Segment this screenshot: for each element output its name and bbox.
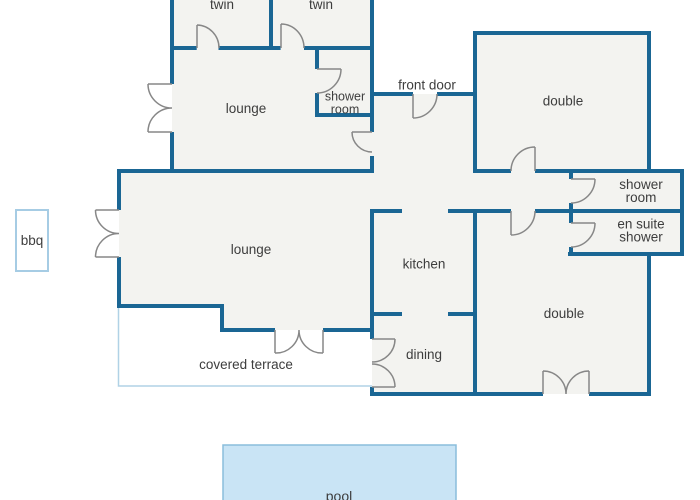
svg-text:front door: front door xyxy=(398,78,456,93)
svg-text:covered terrace: covered terrace xyxy=(199,357,293,372)
svg-text:shower: shower xyxy=(325,90,365,104)
svg-text:shower: shower xyxy=(619,230,663,245)
svg-text:lounge: lounge xyxy=(231,242,272,257)
svg-text:kitchen: kitchen xyxy=(403,257,446,272)
svg-text:double: double xyxy=(543,94,584,109)
svg-text:room: room xyxy=(626,190,657,205)
svg-text:double: double xyxy=(544,306,585,321)
svg-text:pool: pool xyxy=(326,488,352,500)
svg-text:lounge: lounge xyxy=(226,101,267,116)
svg-text:twin: twin xyxy=(210,0,234,12)
svg-text:dining: dining xyxy=(406,347,442,362)
svg-text:bbq: bbq xyxy=(21,233,44,248)
svg-text:twin: twin xyxy=(309,0,333,12)
svg-text:room: room xyxy=(331,103,359,117)
